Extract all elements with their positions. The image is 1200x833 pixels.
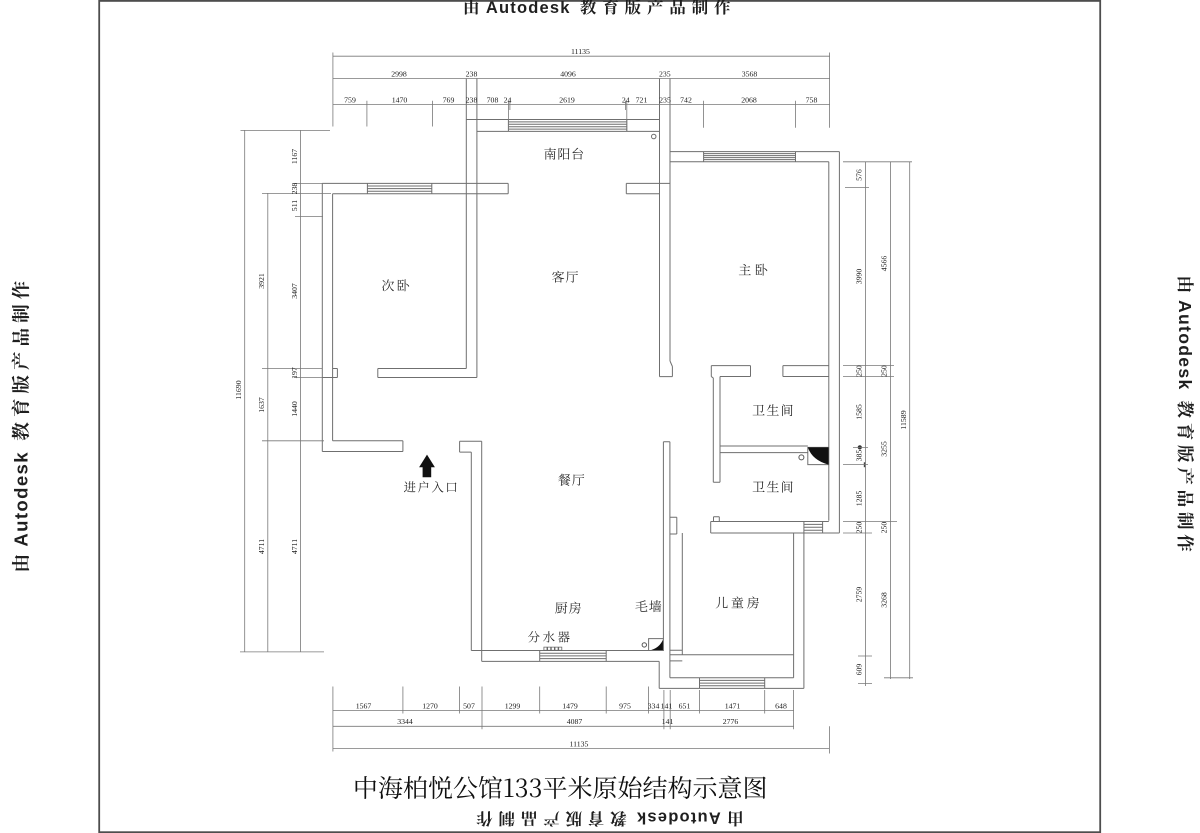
svg-text:11135: 11135 bbox=[571, 47, 590, 56]
svg-text:197: 197 bbox=[290, 367, 299, 379]
svg-text:3344: 3344 bbox=[397, 717, 413, 726]
svg-text:3255: 3255 bbox=[880, 441, 889, 457]
svg-text:235: 235 bbox=[659, 95, 671, 104]
svg-text:4711: 4711 bbox=[257, 539, 266, 554]
svg-text:1299: 1299 bbox=[505, 701, 521, 710]
svg-text:708: 708 bbox=[487, 95, 499, 104]
svg-text:2759: 2759 bbox=[855, 587, 864, 603]
svg-text:648: 648 bbox=[775, 701, 787, 710]
svg-text:1285: 1285 bbox=[855, 491, 864, 507]
svg-text:250: 250 bbox=[855, 522, 864, 534]
svg-text:1167: 1167 bbox=[290, 149, 299, 164]
svg-text:759: 759 bbox=[344, 95, 356, 104]
svg-text:1471: 1471 bbox=[725, 701, 741, 710]
svg-text:1585: 1585 bbox=[855, 404, 864, 420]
svg-text:721: 721 bbox=[636, 95, 648, 104]
svg-text:24: 24 bbox=[504, 95, 512, 104]
svg-text:511: 511 bbox=[290, 200, 299, 212]
svg-text:11135: 11135 bbox=[570, 739, 589, 748]
svg-text:4711: 4711 bbox=[290, 539, 299, 554]
svg-text:1470: 1470 bbox=[392, 95, 408, 104]
svg-text:3568: 3568 bbox=[742, 69, 758, 78]
svg-text:507: 507 bbox=[463, 701, 475, 710]
svg-text:Autodesk: Autodesk bbox=[486, 0, 571, 17]
svg-text:3268: 3268 bbox=[880, 592, 889, 608]
svg-text:235: 235 bbox=[659, 69, 671, 78]
svg-text:1479: 1479 bbox=[562, 701, 578, 710]
svg-text:742: 742 bbox=[680, 95, 692, 104]
svg-text:758: 758 bbox=[806, 95, 818, 104]
svg-text:250: 250 bbox=[880, 365, 889, 377]
svg-text:1440: 1440 bbox=[290, 401, 299, 417]
svg-text:1567: 1567 bbox=[356, 701, 372, 710]
svg-text:238: 238 bbox=[290, 183, 299, 195]
svg-text:3407: 3407 bbox=[290, 283, 299, 299]
svg-text:238: 238 bbox=[466, 69, 478, 78]
svg-text:769: 769 bbox=[443, 95, 455, 104]
svg-text:609: 609 bbox=[855, 664, 864, 676]
svg-text:4566: 4566 bbox=[880, 256, 889, 272]
svg-text:250: 250 bbox=[855, 365, 864, 377]
svg-text:Autodesk: Autodesk bbox=[636, 809, 721, 827]
svg-text:238: 238 bbox=[466, 95, 478, 104]
svg-text:2776: 2776 bbox=[723, 717, 739, 726]
svg-text:141: 141 bbox=[661, 701, 673, 710]
svg-text:334: 334 bbox=[648, 701, 660, 710]
svg-text:Autodesk: Autodesk bbox=[11, 451, 32, 547]
svg-text:4087: 4087 bbox=[567, 717, 583, 726]
svg-text:651: 651 bbox=[679, 701, 691, 710]
svg-text:11690: 11690 bbox=[234, 380, 243, 399]
svg-text:250: 250 bbox=[880, 522, 889, 534]
svg-text:385: 385 bbox=[855, 450, 864, 462]
svg-text:975: 975 bbox=[619, 701, 631, 710]
svg-text:141: 141 bbox=[662, 717, 674, 726]
svg-text:4096: 4096 bbox=[560, 69, 576, 78]
svg-text:11589: 11589 bbox=[899, 410, 908, 429]
svg-text:2998: 2998 bbox=[391, 69, 407, 78]
svg-text:2068: 2068 bbox=[741, 95, 757, 104]
svg-text:24: 24 bbox=[622, 95, 630, 104]
svg-text:Autodesk: Autodesk bbox=[1175, 300, 1195, 391]
svg-text:1270: 1270 bbox=[422, 701, 438, 710]
svg-text:3990: 3990 bbox=[855, 269, 864, 285]
svg-text:576: 576 bbox=[855, 169, 864, 181]
svg-text:1637: 1637 bbox=[257, 397, 266, 413]
svg-text:2619: 2619 bbox=[559, 95, 575, 104]
svg-text:3921: 3921 bbox=[257, 273, 266, 289]
